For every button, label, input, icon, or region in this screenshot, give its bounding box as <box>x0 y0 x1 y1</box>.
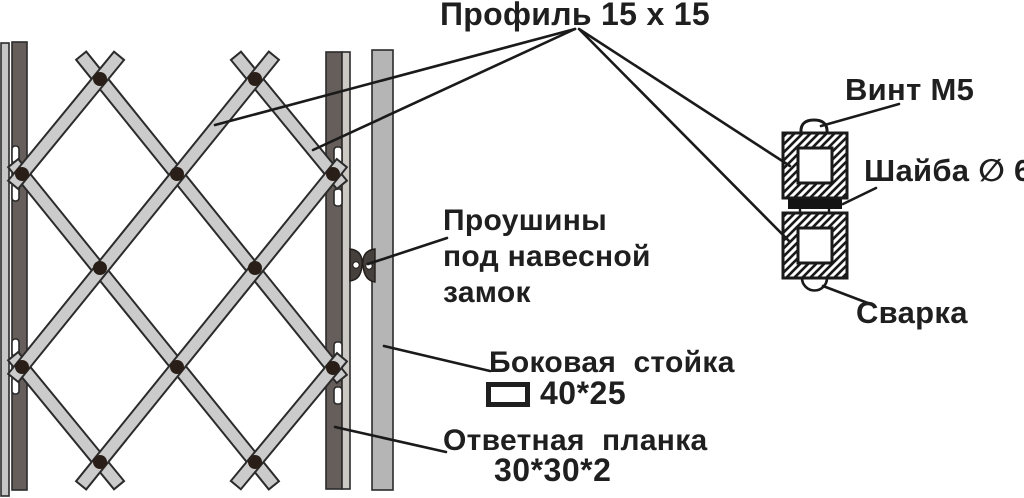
padlock-eyes-label: Проушины под навесной замок <box>443 203 651 311</box>
right-guide-strip <box>342 52 350 489</box>
slot <box>334 189 342 206</box>
slot <box>334 387 342 404</box>
rivet <box>93 72 107 86</box>
rivet <box>248 261 262 275</box>
weld-arc <box>802 278 827 291</box>
side-post-size: 40*25 <box>540 376 626 412</box>
weld-label: Сварка <box>856 296 968 331</box>
rivet <box>326 361 340 375</box>
rivet <box>93 261 107 275</box>
leader-side-post <box>384 346 490 371</box>
rivet <box>93 455 107 469</box>
profile-label: Профиль 15 х 15 <box>440 0 710 33</box>
padlock-eyes <box>350 249 375 282</box>
leader-profile-3 <box>579 29 790 166</box>
eye-hole <box>353 262 359 268</box>
leader-profile-1 <box>215 29 575 125</box>
upper-profile-bore <box>798 148 832 183</box>
left-strike-plate-post <box>12 42 27 490</box>
rect-section-symbol <box>486 382 530 407</box>
right-strike-plate-post <box>326 52 342 489</box>
rivet <box>248 455 262 469</box>
rivet <box>248 72 262 86</box>
scissor-lattice <box>8 52 347 490</box>
rivet <box>15 167 29 181</box>
rivet <box>326 167 340 181</box>
screw-label: Винт М5 <box>845 73 974 108</box>
profile-section-detail <box>783 120 847 291</box>
rivet <box>15 360 29 374</box>
rivet <box>170 360 184 374</box>
strike-plate-size: 30*30*2 <box>494 453 611 489</box>
lower-profile-bore <box>798 228 832 263</box>
scissor-gate-diagram: Профиль 15 х 15 Винт М5 Шайба ∅ 6 Сварка… <box>0 0 1024 498</box>
left-guide-strip <box>1 43 9 496</box>
washer-label: Шайба ∅ 6 <box>864 154 1024 189</box>
washer-d6 <box>788 199 842 209</box>
rivet <box>170 167 184 181</box>
